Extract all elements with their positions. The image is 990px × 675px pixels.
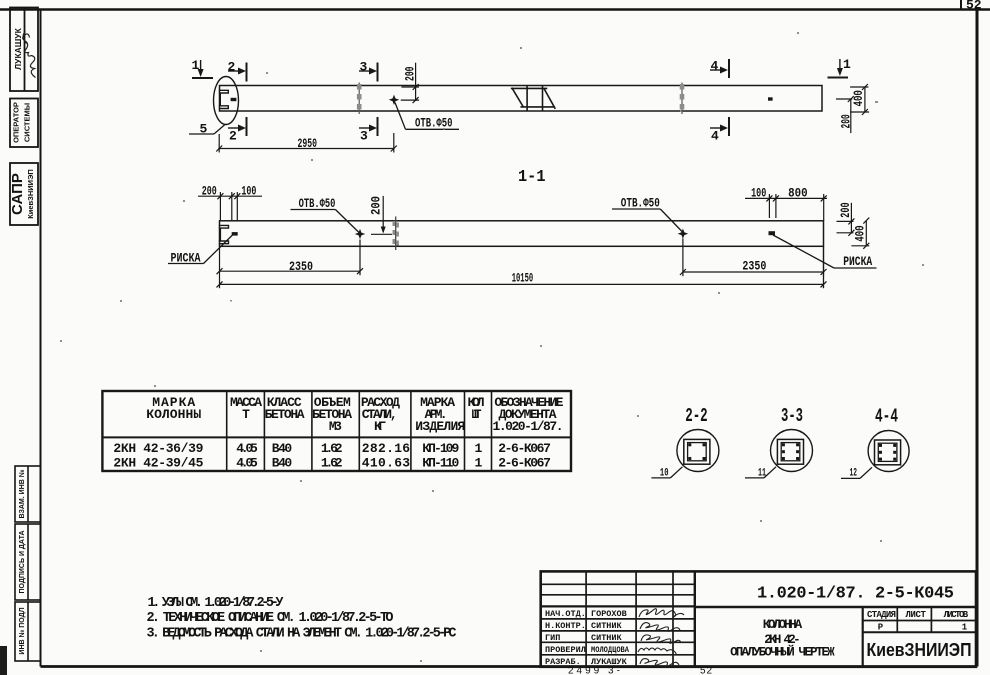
svg-text:2-6-К067: 2-6-К067 [498,456,551,471]
svg-text:4.05: 4.05 [236,441,258,456]
svg-text:ШТ: ШТ [472,407,482,422]
svg-text:1.020-1/87. 2-5-К045: 1.020-1/87. 2-5-К045 [757,585,954,604]
svg-text:4: 4 [711,59,719,74]
svg-text:1.62: 1.62 [321,456,343,471]
svg-text:1.62: 1.62 [321,441,343,456]
svg-text:4: 4 [711,129,719,144]
svg-text:ГИП: ГИП [545,633,560,643]
svg-text:ПРОВЕРИЛ: ПРОВЕРИЛ [545,645,586,655]
svg-text:ЛИСТ: ЛИСТ [905,610,926,620]
svg-text:ИНВ № ПОДЛ: ИНВ № ПОДЛ [18,607,26,654]
svg-text:МОЛОДЦОВА: МОЛОДЦОВА [591,645,630,655]
svg-text:3. ВЕДОМОСТЬ РАСХОДА СТАЛИ НА: 3. ВЕДОМОСТЬ РАСХОДА СТАЛИ НА ЭЛЕМЕНТ СМ… [147,626,457,641]
svg-text:2499 3-: 2499 3- [568,666,623,675]
svg-text:11: 11 [758,468,766,480]
svg-text:52: 52 [966,0,982,13]
svg-text:200: 200 [404,67,418,82]
svg-text:52: 52 [700,666,713,675]
svg-text:200: 200 [202,185,217,199]
svg-text:ОТВ.Ф50: ОТВ.Ф50 [415,117,453,131]
svg-text:Т: Т [242,407,250,422]
svg-text:10150: 10150 [512,272,534,286]
svg-text:КГ: КГ [374,419,386,434]
svg-text:ОПАЛУБОЧНЫЙ ЧЕРТЕЖ: ОПАЛУБОЧНЫЙ ЧЕРТЕЖ [730,645,835,660]
svg-text:СИСТЕМЫ: СИСТЕМЫ [23,103,32,142]
svg-text:4.05: 4.05 [236,456,258,471]
svg-text:100: 100 [241,185,256,199]
svg-text:В40: В40 [272,456,293,471]
svg-text:400: 400 [854,225,868,241]
svg-text:2350: 2350 [289,260,313,274]
svg-text:СИТНИК: СИТНИК [591,621,623,631]
svg-text:3: 3 [360,60,368,75]
svg-text:САПР: САПР [9,173,26,215]
svg-text:282.16: 282.16 [362,441,410,456]
svg-text:1: 1 [843,57,851,72]
svg-text:410.63: 410.63 [362,456,410,471]
svg-text:2950: 2950 [298,137,318,151]
svg-text:2-2: 2-2 [685,405,708,427]
svg-text:КОЛОННЫ: КОЛОННЫ [146,407,201,422]
svg-text:1-1: 1-1 [518,167,546,186]
svg-text:В40: В40 [272,441,293,456]
svg-text:М3: М3 [329,419,342,434]
svg-text:КиевЗНИИЭП: КиевЗНИИЭП [26,169,35,219]
svg-text:3: 3 [360,129,368,144]
svg-text:3-3: 3-3 [781,405,803,427]
svg-text:РИСКА: РИСКА [843,255,872,269]
svg-text:ВЗАМ. ИНВ №: ВЗАМ. ИНВ № [18,469,26,518]
svg-text:НАЧ.ОТД.: НАЧ.ОТД. [545,609,586,619]
svg-text:2: 2 [229,129,237,144]
svg-text:СТАДИЯ: СТАДИЯ [867,610,896,620]
svg-text:ПОДПИСЬ И ДАТА: ПОДПИСЬ И ДАТА [19,530,26,593]
svg-text:ГОРОХОВ: ГОРОХОВ [591,609,627,619]
svg-text:4-4: 4-4 [875,406,898,428]
svg-text:2350: 2350 [742,260,766,274]
svg-text:100: 100 [751,187,766,201]
svg-text:Р: Р [878,623,884,633]
svg-text:200: 200 [839,202,853,217]
svg-text:1. УЗЛЫ СМ. 1.020-1/87.2-5-У: 1. УЗЛЫ СМ. 1.020-1/87.2-5-У [148,596,285,611]
svg-text:БЕТОНА: БЕТОНА [265,407,305,422]
svg-text:800: 800 [788,187,808,201]
svg-text:200: 200 [370,196,384,215]
svg-text:ЛИСТОВ: ЛИСТОВ [944,610,969,620]
svg-text:12: 12 [850,468,858,480]
svg-text:2. ТЕХНИЧЕСКОЕ ОПИСАНИЕ СМ. 1.: 2. ТЕХНИЧЕСКОЕ ОПИСАНИЕ СМ. 1.020-1/87.2… [147,611,394,626]
svg-text:200: 200 [840,114,854,128]
svg-text:400: 400 [852,90,866,106]
svg-text:ИЗДЕЛИЯ: ИЗДЕЛИЯ [415,419,465,434]
svg-text:2КН 42-39/45: 2КН 42-39/45 [113,456,203,471]
svg-text:2КН 42-36/39: 2КН 42-36/39 [113,441,203,456]
svg-text:2-6-К067: 2-6-К067 [498,441,551,456]
svg-text:КП-109: КП-109 [422,441,459,456]
svg-text:1: 1 [475,456,483,471]
svg-text:1: 1 [962,623,968,633]
svg-text:10: 10 [660,468,669,480]
svg-text:2: 2 [228,60,236,75]
svg-text:СИТНИК: СИТНИК [591,633,623,643]
svg-text:Н.КОНТР.: Н.КОНТР. [545,621,586,631]
svg-text:1: 1 [475,441,483,456]
svg-text:КиевЗНИИЭП: КиевЗНИИЭП [867,639,972,660]
svg-text:КП-110: КП-110 [422,456,459,471]
svg-text:ОПЕРАТОР: ОПЕРАТОР [12,102,21,143]
svg-text:1.020-1/87.: 1.020-1/87. [493,419,564,434]
svg-text:ЛУКАШУК: ЛУКАШУК [13,27,23,69]
svg-text:КОЛОННА: КОЛОННА [763,618,803,632]
